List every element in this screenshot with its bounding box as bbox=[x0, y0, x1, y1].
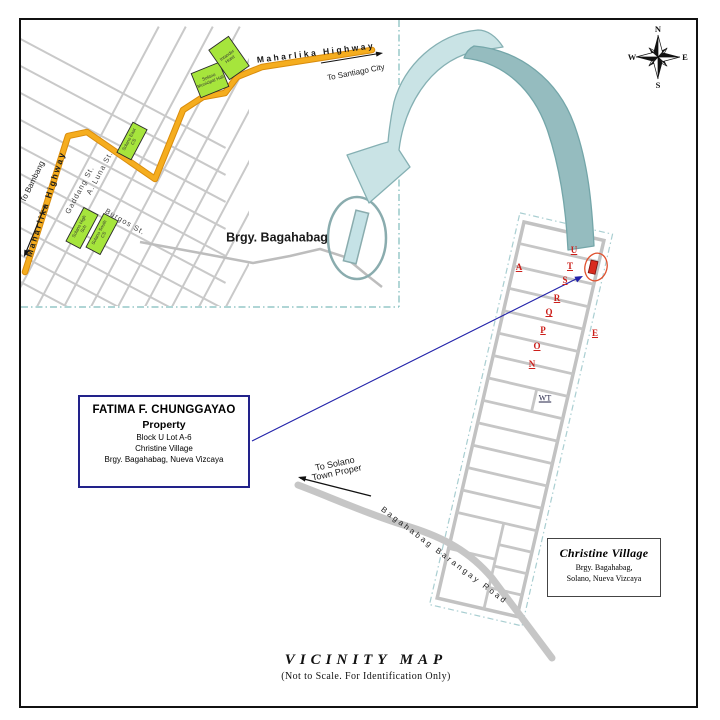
block-label-q: Q bbox=[545, 307, 552, 317]
title-block: VICINITY MAP (Not to Scale. For Identifi… bbox=[230, 652, 502, 682]
block-label-e: E bbox=[592, 328, 598, 338]
map-canvas bbox=[0, 0, 720, 720]
compass-west-label: W bbox=[628, 52, 637, 62]
block-label-p: P bbox=[540, 325, 546, 335]
compass-south-label: S bbox=[656, 80, 661, 90]
village-address-1: Brgy. Bagahabag, bbox=[548, 563, 660, 572]
property-village: Christine Village bbox=[80, 444, 248, 453]
block-label-t: T bbox=[567, 261, 573, 271]
village-address-2: Solano, Nueva Vizcaya bbox=[548, 574, 660, 583]
block-label-r: R bbox=[554, 293, 561, 303]
block-label-s: S bbox=[562, 275, 567, 285]
block-label-n: N bbox=[529, 359, 536, 369]
property-info-box: FATIMA F. CHUNGGAYAO Property Block U Lo… bbox=[78, 395, 250, 488]
barangay-bagahabag-label: Brgy. Bagahabag bbox=[226, 231, 328, 244]
water-tank-label: WT bbox=[539, 394, 551, 403]
compass-rose-icon bbox=[636, 35, 680, 79]
property-lot: Block U Lot A-6 bbox=[80, 433, 248, 442]
village-name: Christine Village bbox=[548, 546, 660, 561]
compass-north-label: N bbox=[655, 24, 661, 34]
block-label-o: O bbox=[533, 341, 540, 351]
map-subtitle: (Not to Scale. For Identification Only) bbox=[230, 671, 502, 682]
vicinity-map-page: Maharlika Highway To Santiago City Mahar… bbox=[0, 0, 720, 720]
block-label-a: A bbox=[516, 262, 523, 272]
page-border bbox=[20, 19, 697, 707]
property-type: Property bbox=[80, 419, 248, 431]
inset-map-border bbox=[21, 20, 399, 307]
curved-arrow-tail-band bbox=[464, 46, 594, 250]
village-info-box: Christine Village Brgy. Bagahabag, Solan… bbox=[547, 538, 661, 597]
block-label-u: U bbox=[571, 245, 578, 255]
village-strip-symbol bbox=[343, 210, 368, 264]
property-address: Brgy. Bagahabag, Nueva Vizcaya bbox=[80, 455, 248, 464]
compass-east-label: E bbox=[682, 52, 688, 62]
property-owner: FATIMA F. CHUNGGAYAO bbox=[80, 404, 248, 416]
map-title: VICINITY MAP bbox=[230, 652, 502, 669]
